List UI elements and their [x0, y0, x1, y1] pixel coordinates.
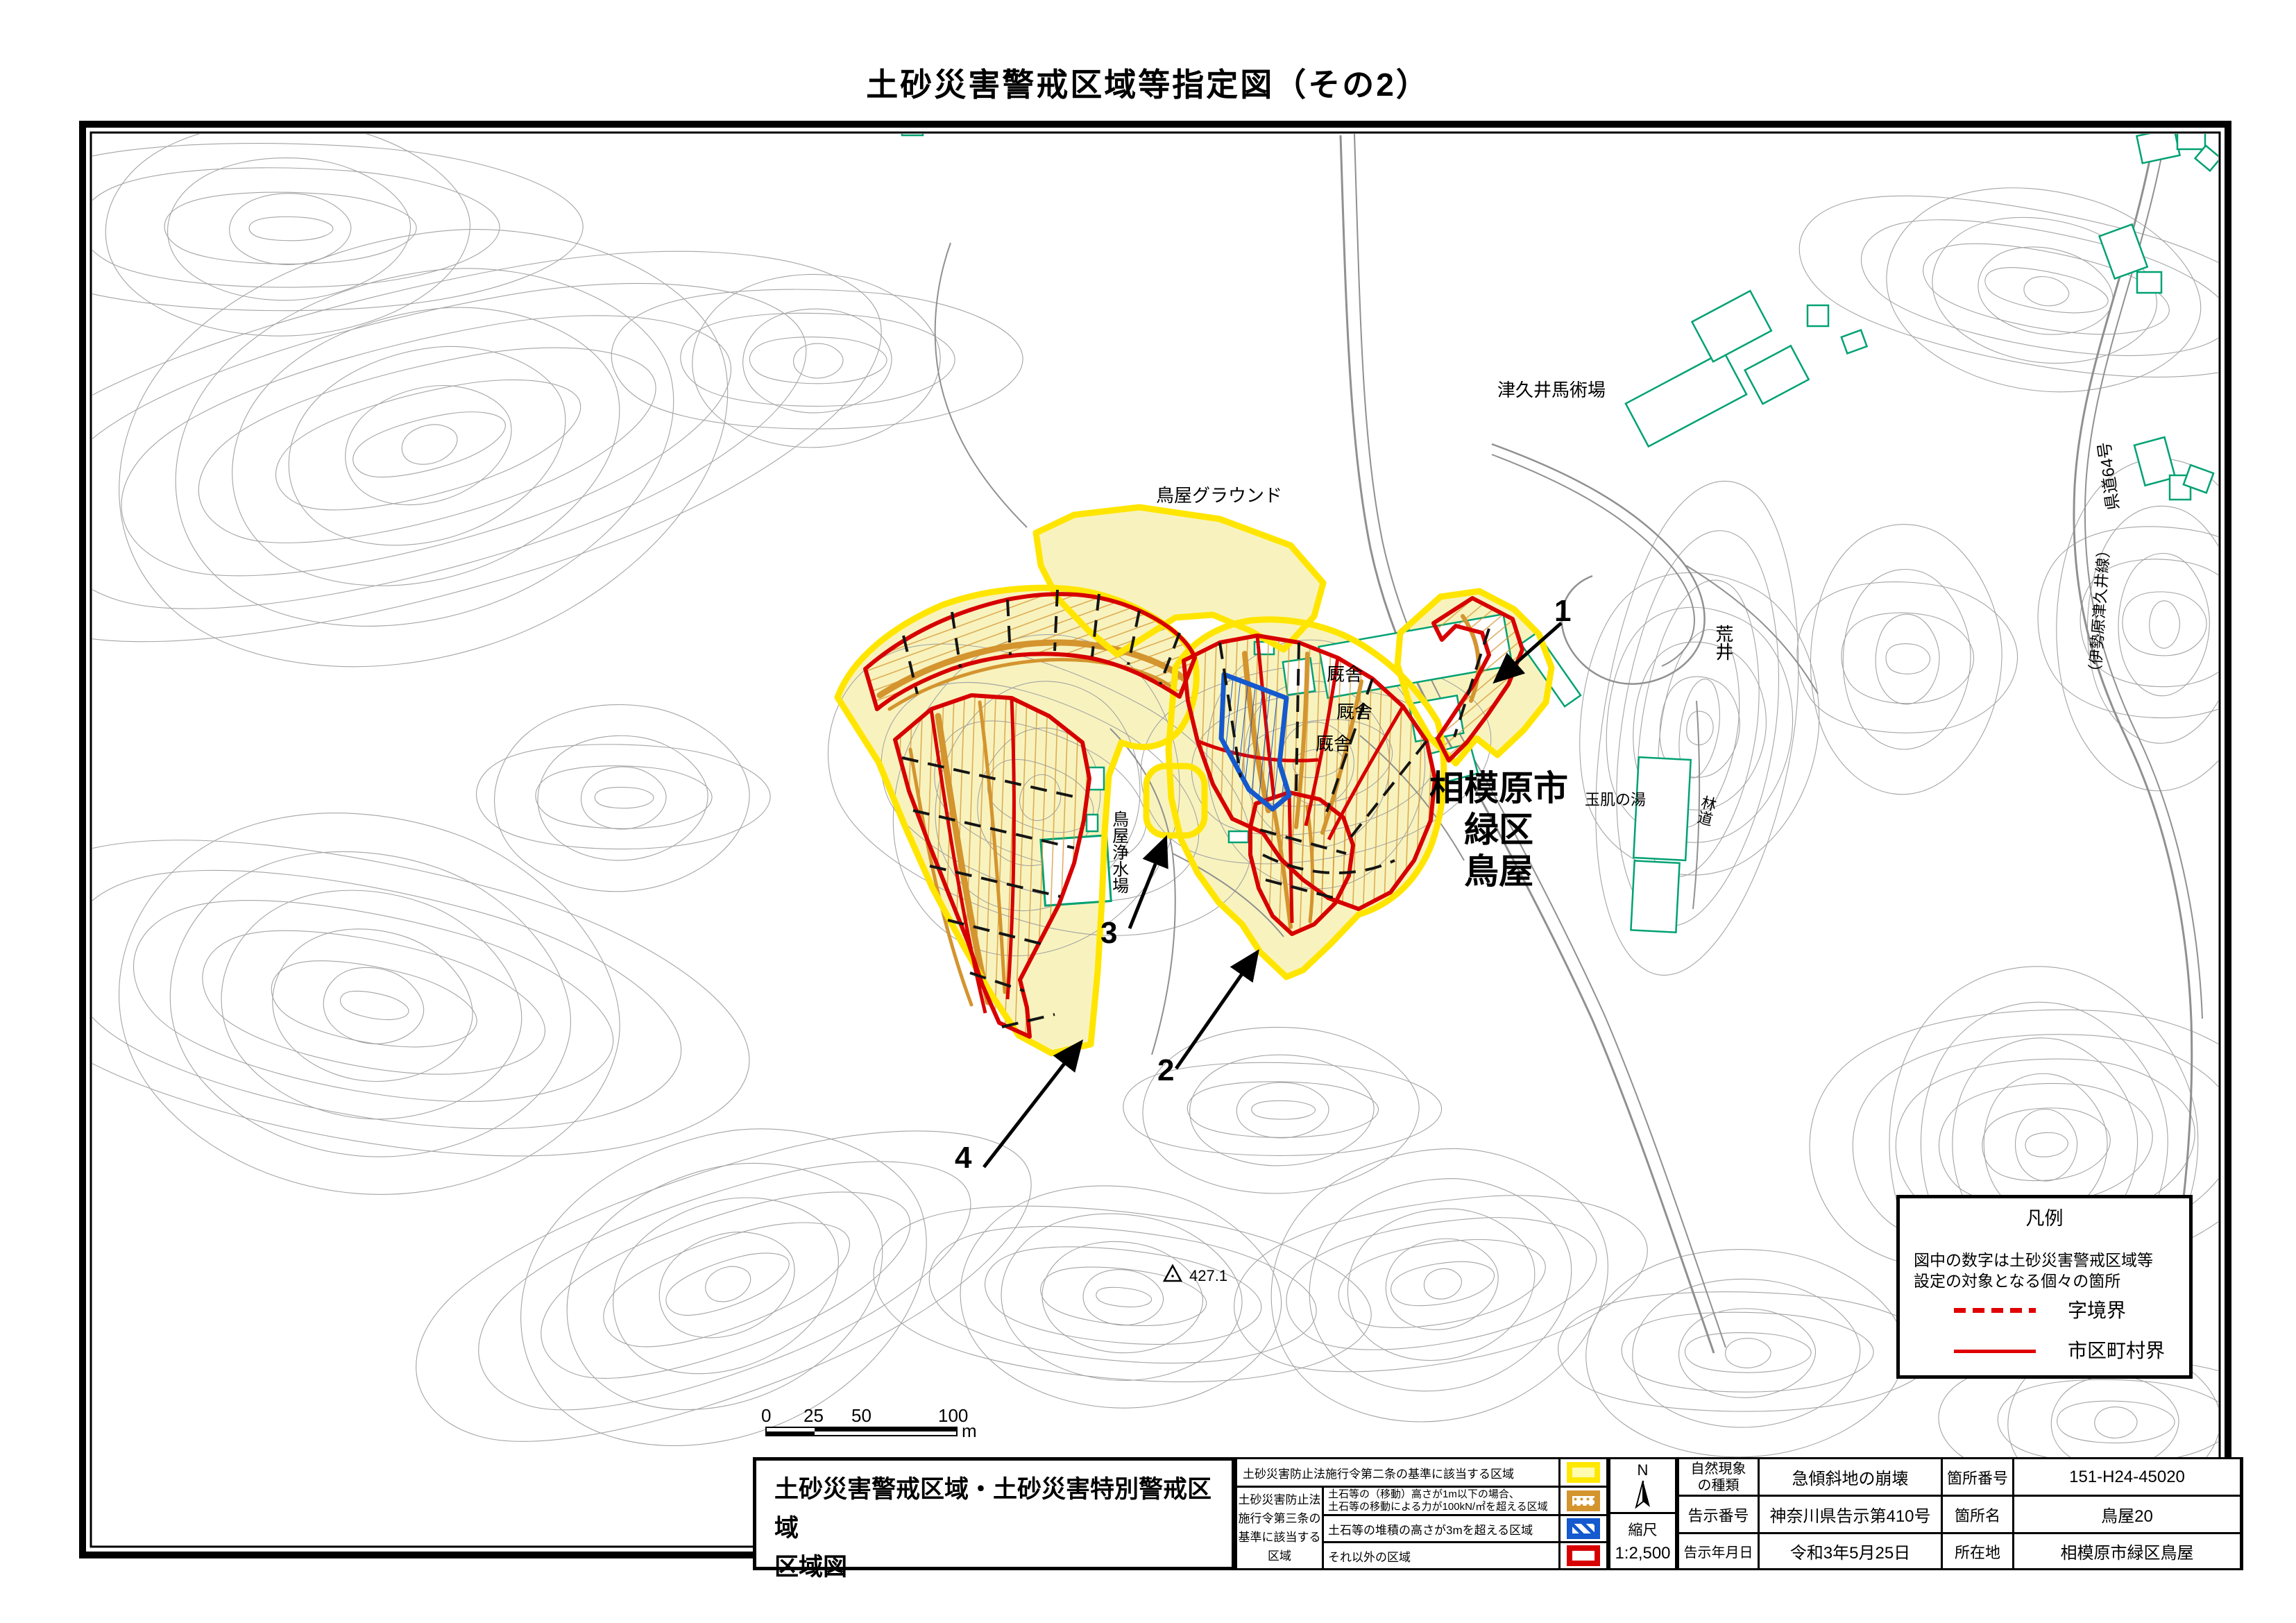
info-r2-label2: 箇所名 [1941, 1495, 2014, 1534]
yellow-zone-swatch-icon [1567, 1462, 1600, 1483]
scale-tick-50: 50 [851, 1406, 871, 1427]
triangulation-point-icon [1164, 1266, 1181, 1281]
label-site-3: 3 [1100, 916, 1117, 951]
scale-unit: m [962, 1421, 977, 1442]
label-city-line2: 緑区 [1381, 809, 1617, 851]
north-arrow-icon [1631, 1479, 1656, 1510]
legend-dashed-label: 字境界 [2068, 1300, 2126, 1322]
legend-row2-desc: 土石等の（移動）高さが1m以下の場合、 土石等の移動による力が100kN/㎡を超… [1322, 1486, 1561, 1516]
label-stable-2: 厩舎 [1336, 702, 1372, 723]
red-zone-swatch-icon [1567, 1545, 1600, 1566]
info-r3-value1: 令和3年5月25日 [1758, 1532, 1943, 1570]
legend-law-label: 土砂災害防止法 施行令第三条の 基準に該当する 区域 [1235, 1486, 1324, 1570]
label-elevation: 427.1 [1189, 1267, 1227, 1284]
legend-row1-swatch-cell [1558, 1457, 1608, 1488]
info-r1-label1: 自然現象 の種類 [1677, 1457, 1760, 1497]
legend-row2-swatch-cell [1558, 1486, 1608, 1516]
scale-label: 縮尺 [1629, 1519, 1658, 1540]
sheet-title-block: 土砂災害警戒区域・土砂災害特別警戒区域 区域図 [753, 1457, 1235, 1570]
info-r1-value2: 151-H24-45020 [2012, 1457, 2243, 1497]
label-site-1: 1 [1554, 594, 1571, 629]
info-r3-value2: 相模原市緑区鳥屋 [2012, 1532, 2243, 1570]
label-city-ward: 相模原市 緑区 鳥屋 [1381, 767, 1617, 892]
legend-row3-desc: 土石等の堆積の高さが3mを超える区域 [1322, 1514, 1561, 1543]
blue-zone-swatch-icon [1567, 1518, 1600, 1539]
legend-note: 図中の数字は土砂災害警戒区域等 設定の対象となる個々の箇所 [1914, 1250, 2153, 1291]
scale-tick-0: 0 [761, 1406, 771, 1427]
scale-cell: 縮尺 1:2,500 [1608, 1512, 1677, 1570]
label-stable-1: 厩舎 [1327, 665, 1363, 686]
info-r2-value1: 神奈川県告示第410号 [1758, 1495, 1943, 1534]
label-spa: 玉肌の湯 [1585, 791, 1646, 808]
legend-row4-swatch-cell [1558, 1541, 1608, 1570]
legend-box: 凡例 図中の数字は土砂災害警戒区域等 設定の対象となる個々の箇所 字境界 市区町… [1896, 1195, 2193, 1379]
legend-row4-desc: それ以外の区域 [1322, 1541, 1561, 1570]
orange-zone-swatch-icon [1567, 1490, 1600, 1511]
legend-solid-label: 市区町村界 [2068, 1340, 2165, 1362]
info-r1-label2: 箇所番号 [1941, 1457, 2014, 1497]
legend-row3-swatch-cell [1558, 1514, 1608, 1543]
info-r1-value1: 急傾斜地の崩壊 [1758, 1457, 1943, 1497]
compass-n-label: N [1638, 1461, 1649, 1479]
label-equestrian-ground: 津久井馬術場 [1497, 380, 1606, 401]
scale-value: 1:2,500 [1615, 1544, 1670, 1563]
info-r2-value2: 鳥屋20 [2012, 1495, 2243, 1534]
scale-bar-graphic [765, 1427, 958, 1436]
label-stable-3: 厩舎 [1316, 734, 1352, 755]
info-r3-label2: 所在地 [1941, 1532, 2014, 1570]
map-canvas [0, 0, 2296, 1623]
info-r2-label1: 告示番号 [1677, 1495, 1760, 1534]
municipal-boundary-line-icon [1954, 1350, 2036, 1353]
label-city-line1: 相模原市 [1381, 767, 1617, 809]
label-site-2: 2 [1157, 1053, 1174, 1089]
legend-title: 凡例 [1900, 1208, 2189, 1230]
label-site-4: 4 [955, 1141, 971, 1176]
scale-tick-25: 25 [803, 1406, 824, 1427]
map-sheet: 土砂災害警戒区域等指定図（その2） [0, 0, 2296, 1623]
label-city-line3: 鳥屋 [1381, 851, 1617, 892]
legend-row1-desc: 土砂災害防止法施行令第二条の基準に該当する区域 [1235, 1457, 1561, 1488]
aza-boundary-line-icon [1954, 1308, 2036, 1313]
label-arai: 荒井 [1712, 624, 1733, 661]
compass-cell: N [1608, 1457, 1677, 1514]
label-toya-ground: 鳥屋グラウンド [1156, 486, 1282, 507]
info-r3-label1: 告示年月日 [1677, 1532, 1760, 1570]
label-water-plant: 鳥屋浄水場 [1109, 810, 1128, 894]
